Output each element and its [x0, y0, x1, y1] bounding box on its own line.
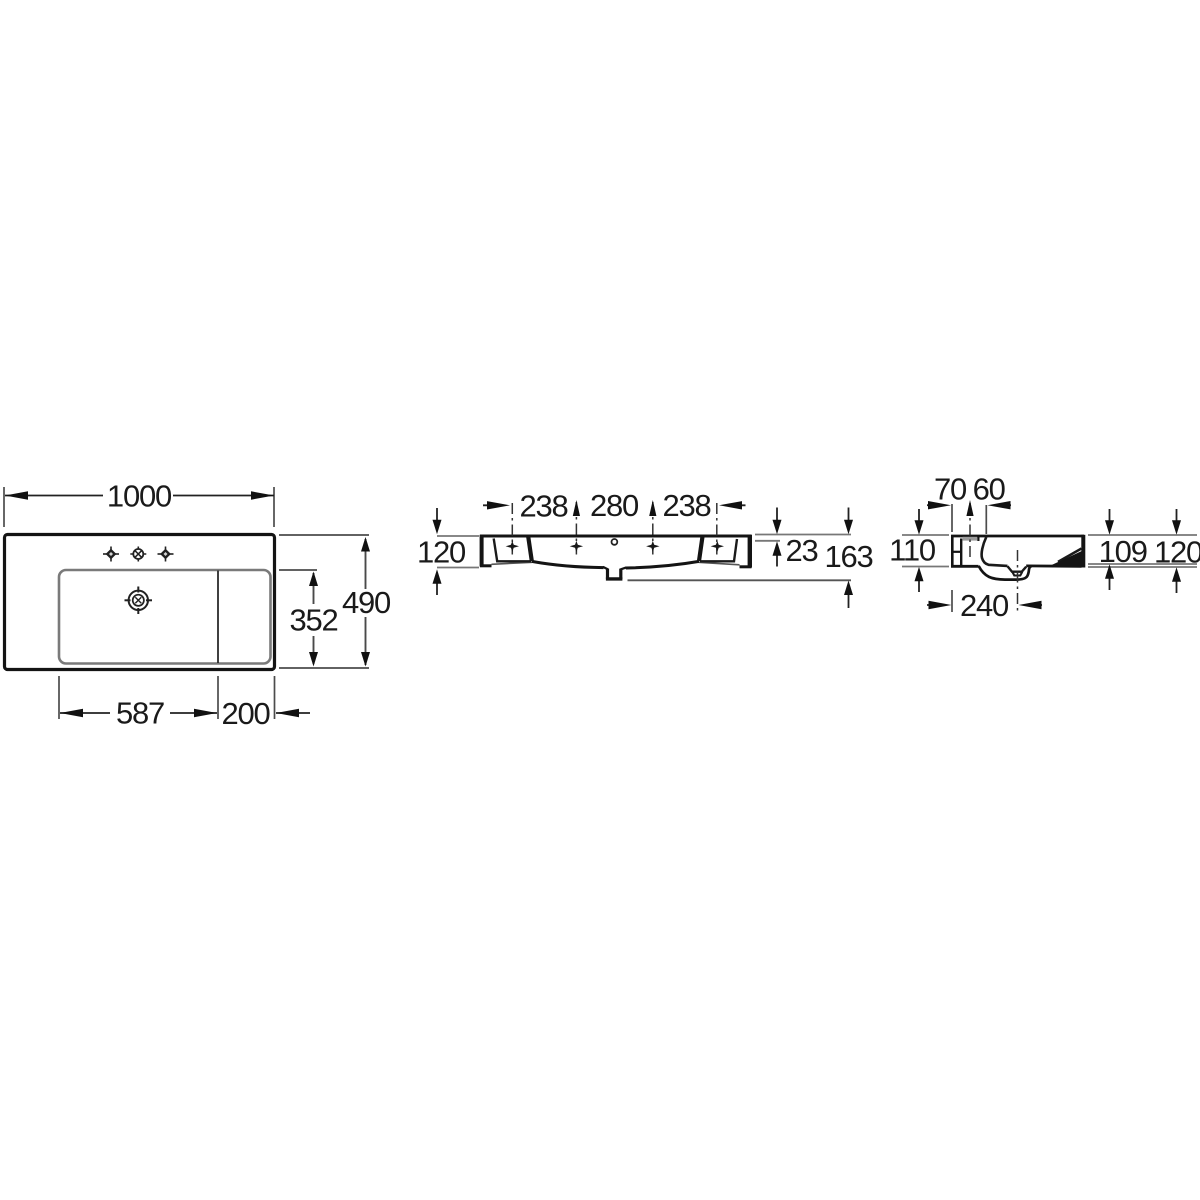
svg-text:280: 280 — [590, 488, 639, 523]
svg-text:163: 163 — [824, 539, 872, 574]
svg-text:587: 587 — [116, 696, 164, 731]
svg-text:23: 23 — [785, 533, 817, 568]
svg-text:1000: 1000 — [107, 479, 172, 514]
svg-text:200: 200 — [221, 696, 270, 731]
svg-text:240: 240 — [960, 588, 1009, 623]
svg-text:238: 238 — [519, 489, 567, 524]
svg-text:238: 238 — [662, 488, 710, 523]
svg-text:60: 60 — [973, 472, 1006, 507]
svg-text:109: 109 — [1099, 534, 1147, 569]
svg-text:70: 70 — [934, 472, 967, 507]
svg-text:490: 490 — [342, 585, 391, 620]
svg-text:352: 352 — [289, 603, 337, 638]
svg-text:120: 120 — [1154, 535, 1200, 570]
svg-text:110: 110 — [889, 533, 936, 568]
svg-text:120: 120 — [417, 535, 466, 570]
